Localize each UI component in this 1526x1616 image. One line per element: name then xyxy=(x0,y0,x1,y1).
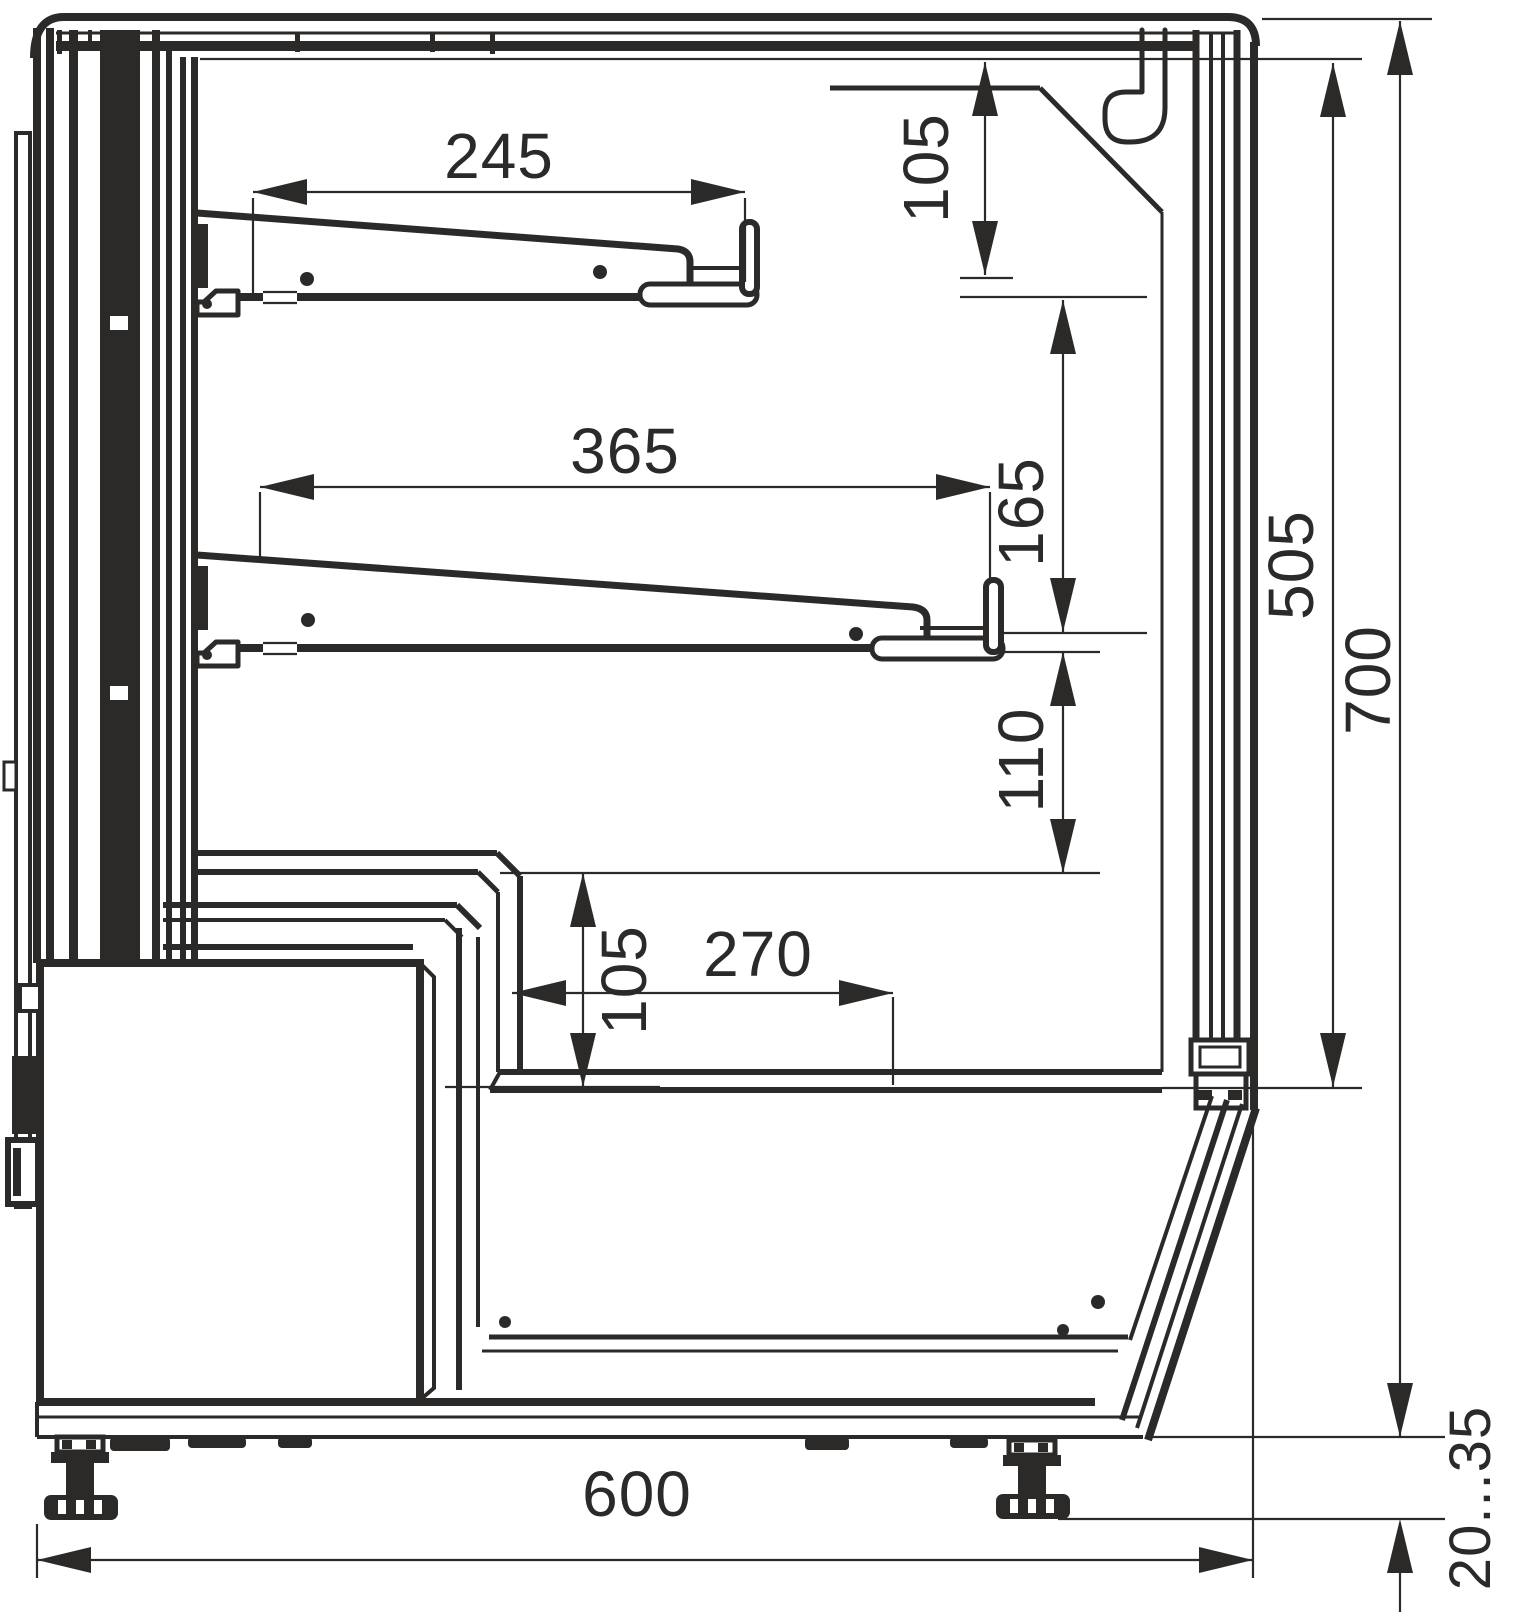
leveling-foot-right xyxy=(996,1440,1070,1519)
back-outer-panel xyxy=(16,133,30,1207)
dim-shelf-to-ledge: 110 xyxy=(500,652,1100,873)
dim-shelf-lower-depth: 365 xyxy=(260,415,990,582)
dim-label-105-top: 105 xyxy=(890,113,962,223)
dim-label-165: 165 xyxy=(985,457,1057,567)
sloped-front-panel xyxy=(1091,1096,1256,1440)
machine-compartment xyxy=(8,963,434,1402)
dim-label-505: 505 xyxy=(1255,510,1327,620)
side-fitting-knob xyxy=(8,1140,38,1204)
shelf-upright xyxy=(180,57,186,962)
side-fitting-hinge xyxy=(12,1056,38,1134)
leveling-foot-left xyxy=(44,1437,118,1520)
shelf-upper xyxy=(196,213,757,315)
canopy-chamfer xyxy=(1040,88,1162,212)
cross-section-drawing: 245 365 105 165 110 105 27 xyxy=(0,0,1526,1616)
drawing-canvas: 245 365 105 165 110 105 27 xyxy=(0,0,1526,1616)
base-frame xyxy=(37,1402,1143,1451)
dim-label-245: 245 xyxy=(444,120,554,192)
dim-label-700: 700 xyxy=(1332,625,1404,735)
shelf-lower-price-rail xyxy=(986,580,1001,652)
shelf-lower xyxy=(196,555,1003,666)
dim-label-20-35: 20...35 xyxy=(1438,1406,1503,1590)
front-glass-wall xyxy=(1162,30,1254,1110)
bottom-pan xyxy=(482,1316,1128,1351)
dim-canopy-to-shelf: 105 xyxy=(890,62,1013,278)
dim-deck-depth: 270 xyxy=(512,918,893,1085)
dim-label-365: 365 xyxy=(570,415,680,487)
dim-shelf-upper-depth: 245 xyxy=(253,120,745,296)
dim-label-270: 270 xyxy=(703,918,813,990)
side-fitting-small xyxy=(20,985,40,1011)
dim-label-600: 600 xyxy=(582,1458,692,1530)
dim-inner-height: 505 xyxy=(1162,63,1362,1088)
dim-label-110: 110 xyxy=(985,707,1057,812)
dim-label-105-bottom: 105 xyxy=(588,925,660,1035)
back-panel-fitting xyxy=(4,762,16,790)
